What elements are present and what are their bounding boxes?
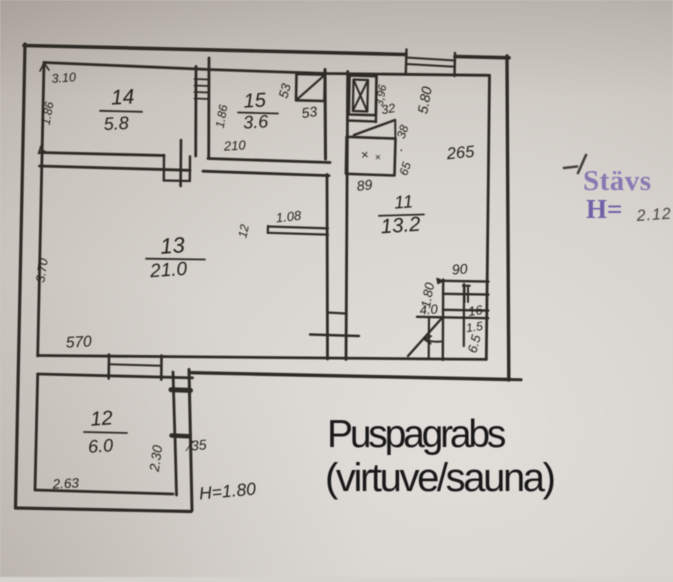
svg-text:16: 16 bbox=[467, 302, 484, 319]
svg-text:14: 14 bbox=[110, 85, 135, 109]
svg-text:210: 210 bbox=[223, 137, 247, 153]
svg-text:13: 13 bbox=[159, 232, 186, 259]
svg-text:5.8: 5.8 bbox=[103, 113, 129, 134]
svg-text:4.0: 4.0 bbox=[419, 301, 439, 317]
svg-text:89: 89 bbox=[356, 176, 373, 194]
svg-text:Stävs: Stävs bbox=[583, 165, 652, 197]
svg-text:3.6: 3.6 bbox=[243, 111, 270, 132]
svg-text:1.08: 1.08 bbox=[275, 208, 302, 226]
svg-text:13.2: 13.2 bbox=[380, 213, 422, 239]
svg-text:2.12: 2.12 bbox=[635, 206, 672, 225]
svg-text:12: 12 bbox=[90, 407, 114, 430]
svg-text:15: 15 bbox=[243, 89, 267, 112]
svg-text:53: 53 bbox=[300, 103, 318, 121]
svg-text:11: 11 bbox=[394, 191, 414, 212]
svg-text:.: . bbox=[400, 138, 404, 154]
svg-text:570: 570 bbox=[65, 333, 92, 351]
svg-text:1.5: 1.5 bbox=[465, 319, 484, 335]
svg-text:6.0: 6.0 bbox=[87, 435, 113, 457]
svg-text:Puspagrabs: Puspagrabs bbox=[327, 413, 506, 456]
svg-text:32: 32 bbox=[380, 101, 396, 117]
svg-text:×: × bbox=[374, 152, 381, 163]
svg-text:21.0: 21.0 bbox=[148, 259, 188, 283]
svg-text:2.63: 2.63 bbox=[51, 475, 80, 491]
svg-text:90: 90 bbox=[451, 260, 468, 277]
svg-text:×: × bbox=[360, 147, 369, 163]
svg-text:H=: H= bbox=[586, 194, 622, 224]
svg-text:3.10: 3.10 bbox=[51, 70, 76, 86]
svg-text:265: 265 bbox=[445, 143, 476, 163]
svg-text:(virtuve/sauna): (virtuve/sauna) bbox=[325, 456, 554, 500]
